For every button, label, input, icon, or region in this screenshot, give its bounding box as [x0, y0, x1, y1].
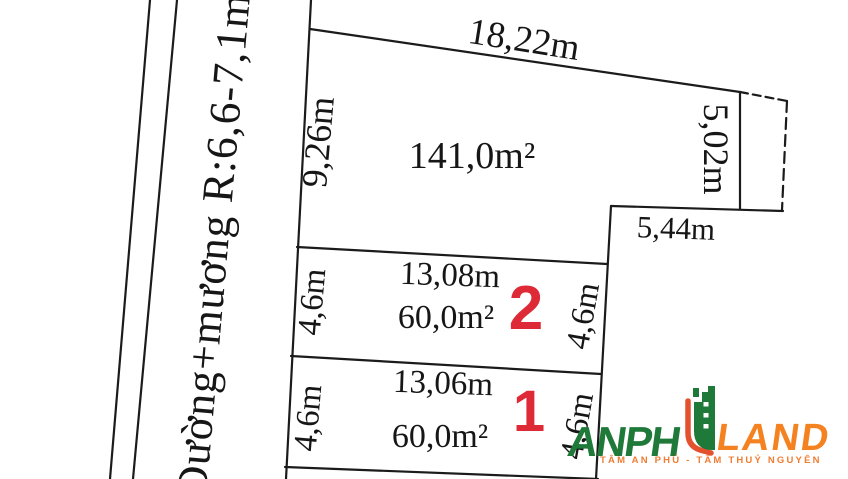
- plot1-width-label: 13,06m: [392, 366, 493, 402]
- sliver-right-dashed-line: [782, 101, 787, 210]
- land-plot-diagram: Đường+mương R:6,6-7,1m 9,26m 18,22m 141,…: [0, 0, 848, 479]
- main-plot-left-height-label: 9,26m: [296, 95, 340, 189]
- main-plot-right-height-label: 5,02m: [698, 103, 734, 194]
- plot2-left-height-label: 4,6m: [294, 267, 333, 337]
- sliver-top-dashed-line: [740, 92, 787, 101]
- plot-boundaries-svg: [0, 0, 848, 479]
- plot2-width-label: 13,08m: [399, 258, 500, 294]
- road-edge-right-line: [133, 0, 177, 479]
- road-edge-left-line: [110, 0, 150, 479]
- plot1-left-height-label: 4,6m: [290, 383, 329, 453]
- plot2-number: 2: [509, 278, 543, 340]
- main-plot-bottom-step-label: 5,44m: [636, 211, 715, 245]
- row1-bottom-line: [285, 467, 598, 479]
- plot1-number: 1: [513, 383, 545, 441]
- rows-right-boundary-line: [596, 206, 611, 479]
- plot2-area-label: 60,0m²: [398, 301, 494, 335]
- main-plot-area-label: 141,0m²: [409, 137, 535, 175]
- plot1-area-label: 60,0m²: [392, 420, 488, 454]
